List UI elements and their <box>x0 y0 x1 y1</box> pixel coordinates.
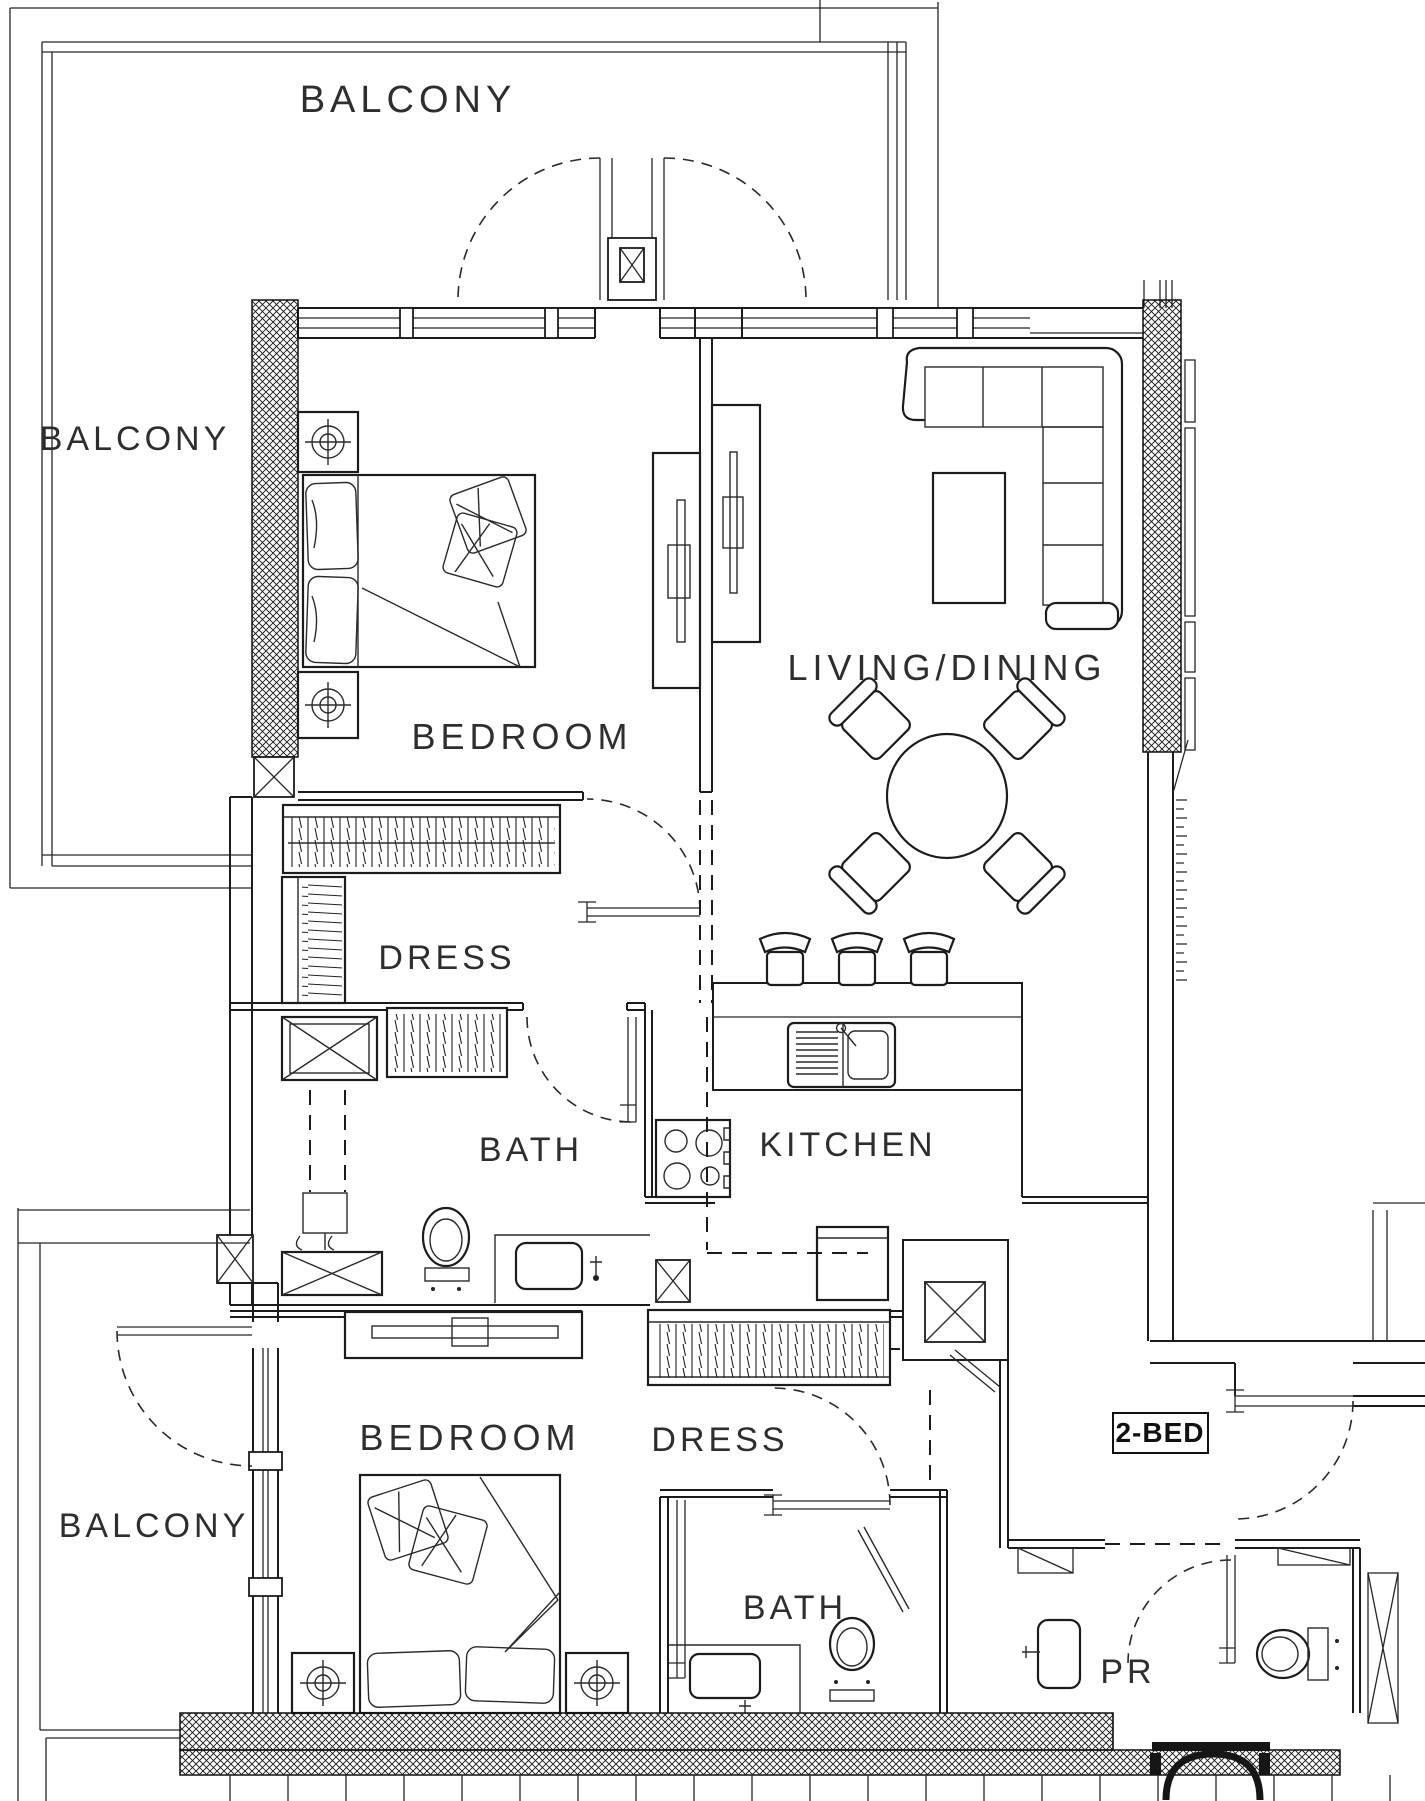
unit-type-tag: 2-BED <box>1113 1413 1208 1453</box>
balcony-bottom-structure <box>18 1208 250 1801</box>
label-bedroom-1: BEDROOM <box>411 716 632 757</box>
label-kitchen: KITCHEN <box>759 1126 936 1164</box>
bedroom2-bed <box>360 1475 560 1713</box>
stove <box>656 1120 730 1197</box>
fridge <box>817 1227 888 1300</box>
entry-door <box>1226 1390 1353 1519</box>
pr-door <box>1128 1555 1235 1663</box>
duct-xbox-small <box>656 1260 690 1302</box>
bedroom1-door <box>578 799 700 922</box>
bedroom1-nightstand-bottom <box>298 672 358 738</box>
floor-plan: 2-BED <box>0 0 1425 1801</box>
bedroom2-nightstand-left <box>292 1653 354 1713</box>
label-balcony-top: BALCONY <box>300 79 517 121</box>
label-bath-1: BATH <box>479 1131 583 1169</box>
dining-set <box>827 676 1068 917</box>
east-structural-wall <box>1143 300 1195 1341</box>
bedroom1-bed <box>303 475 535 667</box>
entry-walls <box>1150 1203 1425 1406</box>
label-dress-1: DRESS <box>378 939 515 977</box>
label-pr: PR <box>1100 1653 1155 1691</box>
bar-stools <box>760 933 954 985</box>
bath1 <box>282 1008 650 1303</box>
bedroom1-nightstand-top <box>298 412 358 472</box>
kitchen-island <box>713 983 1022 1090</box>
shaft <box>903 1240 1008 1392</box>
label-dress-2: DRESS <box>651 1421 788 1459</box>
label-balcony-bottom: BALCONY <box>59 1507 250 1545</box>
dress1 <box>230 800 712 1010</box>
bedroom2-walls <box>217 1235 282 1713</box>
pr-vanity <box>1022 1620 1080 1688</box>
pr-toilet <box>1257 1628 1339 1680</box>
west-structural-wall <box>230 300 298 1305</box>
label-balcony-left: BALCONY <box>40 420 231 458</box>
label-bath-2: BATH <box>743 1589 847 1627</box>
bedroom2-dresser <box>345 1312 582 1358</box>
bath2-vanity <box>668 1645 800 1714</box>
label-living-dining: LIVING/DINING <box>787 647 1106 688</box>
living-tv-console <box>712 405 760 642</box>
label-bedroom-2: BEDROOM <box>359 1417 580 1458</box>
bath2-toilet <box>830 1618 874 1701</box>
balcony-double-door <box>458 158 806 338</box>
coffee-table <box>933 473 1005 603</box>
bedroom2-balcony-door <box>117 1327 252 1466</box>
floor-plan-drawing: 2-BED <box>0 0 1425 1801</box>
bedroom1-tv-console <box>653 453 700 688</box>
unit-type-label: 2-BED <box>1115 1417 1204 1448</box>
bath1-door <box>527 1017 636 1122</box>
dress2 <box>648 1310 930 1490</box>
bedroom2-nightstand-right <box>566 1653 628 1713</box>
dining-table <box>887 734 1007 858</box>
